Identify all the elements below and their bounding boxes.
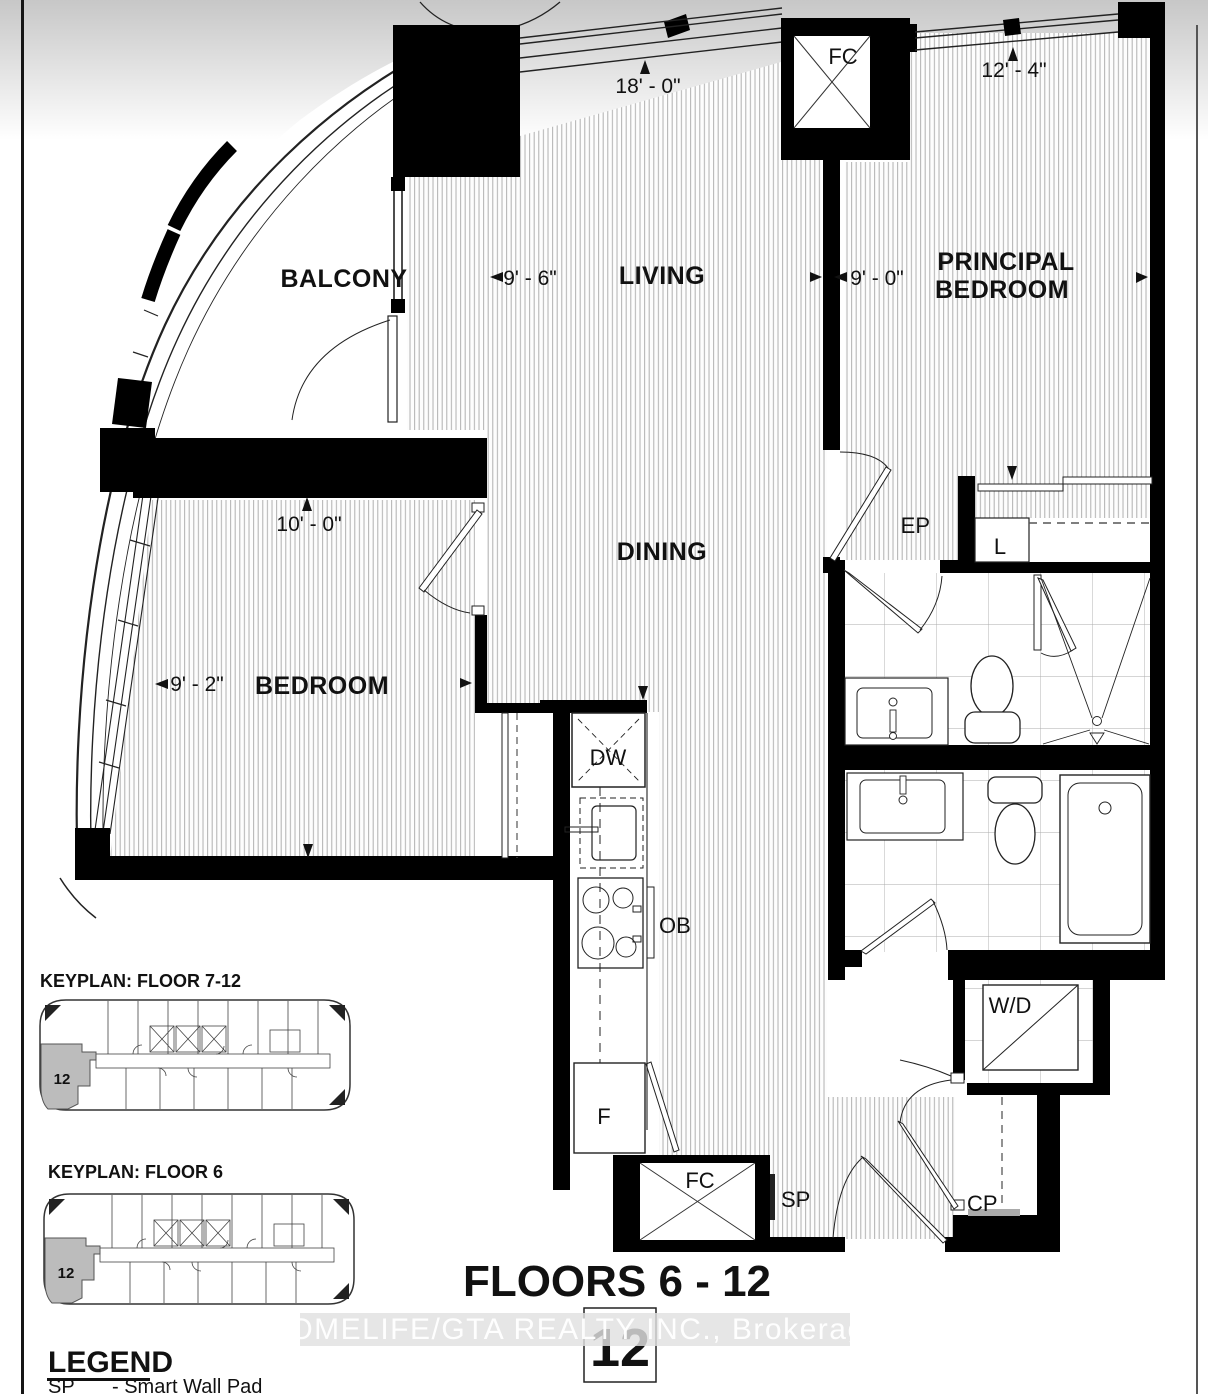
bedroom-door-hinge-bottom xyxy=(472,606,484,615)
dim-living-length: 18' - 0" xyxy=(615,75,680,98)
dim-bedroom-length: 10' - 0" xyxy=(276,513,341,536)
wall-balcony-bedroom xyxy=(133,438,487,498)
living-label: LIVING xyxy=(619,262,705,290)
bedroom-closet-slider xyxy=(502,713,508,858)
wall-entry-se xyxy=(953,1215,1060,1252)
watermark: HOMELIFE/GTA REALTY INC., Brokerage xyxy=(266,1313,884,1346)
ep-corridor-floor xyxy=(845,440,958,560)
wall-ne-corner xyxy=(1118,2,1165,38)
floorplan-page: 12 xyxy=(0,0,1208,1394)
legend-item-description: - Smart Wall Pad xyxy=(112,1376,262,1394)
wall-wd-west xyxy=(953,980,965,1080)
window-cap-top xyxy=(391,177,405,191)
wall-bath2-south-right xyxy=(948,950,1165,980)
bedroom-label: BEDROOM xyxy=(255,672,389,700)
dim-principal-length: 12' - 4" xyxy=(981,59,1046,82)
fridge-label: F xyxy=(597,1104,610,1129)
wall-curve-chunk xyxy=(112,378,152,428)
wall-east xyxy=(1150,33,1165,980)
principal-closet-slider-left xyxy=(978,484,1063,491)
principal-bedroom-floor-top xyxy=(910,33,1150,162)
smart-wall-pad xyxy=(770,1174,775,1220)
fc-top-label: FC xyxy=(828,44,857,69)
bathroom2-toilet-bowl xyxy=(995,804,1035,864)
principal-bedroom-label-line2: BEDROOM xyxy=(935,276,1069,304)
linen-label: L xyxy=(994,534,1006,559)
wall-ep-stub xyxy=(958,476,975,562)
wall-between-baths xyxy=(833,745,1165,770)
floors-title: FLOORS 6 - 12 xyxy=(463,1257,771,1306)
dining-label: DINING xyxy=(617,538,708,566)
wall-kitchen-north xyxy=(540,700,647,713)
dim-living-width: 9' - 6" xyxy=(503,267,556,290)
principal-bedroom-floor xyxy=(845,162,1150,478)
keyplan2-title: KEYPLAN: FLOOR 6 xyxy=(48,1162,223,1182)
wall-wd-south xyxy=(967,1083,1110,1095)
wall-cp-east xyxy=(1037,1095,1060,1215)
fc-bottom-label: FC xyxy=(685,1168,714,1193)
right-page-border xyxy=(1196,25,1198,1394)
watermark-text: HOMELIFE/GTA REALTY INC., Brokerage xyxy=(266,1313,884,1346)
ensuite-toilet-bowl xyxy=(971,656,1013,716)
wall-bath2-south-left xyxy=(833,950,862,967)
keyplan2-drawing xyxy=(44,1194,354,1304)
legend-item-code: SP xyxy=(48,1376,75,1394)
keyplan1-title: KEYPLAN: FLOOR 7-12 xyxy=(40,971,241,991)
shower-partition xyxy=(1034,575,1041,650)
balcony-door-leaf xyxy=(388,316,397,422)
dim-bedroom-width: 9' - 2" xyxy=(170,673,223,696)
wall-top-left-column xyxy=(393,25,520,177)
balcony-label: BALCONY xyxy=(280,265,407,293)
ep-label: EP xyxy=(901,513,930,538)
sp-label: SP xyxy=(781,1187,810,1212)
bathroom2-toilet-tank xyxy=(988,777,1042,803)
principal-bedroom-label-line1: PRINCIPAL xyxy=(937,248,1074,276)
wall-wd-east xyxy=(1093,980,1110,1095)
legend-title: LEGEND xyxy=(48,1346,173,1379)
dim-principal-width: 9' - 0" xyxy=(850,267,903,290)
cp-label: CP xyxy=(967,1191,998,1216)
window-cap-bottom xyxy=(391,299,405,313)
mullion-principal-mid xyxy=(1003,18,1021,36)
cp-door-hinge-top xyxy=(951,1073,964,1083)
principal-closet-slider-right xyxy=(1063,477,1152,484)
dishwasher-label: DW xyxy=(590,745,627,770)
ensuite-toilet-tank xyxy=(965,712,1020,743)
wall-bedroom-south xyxy=(85,856,560,880)
floor-plan-drawing: 12 xyxy=(0,0,1208,1394)
washer-dryer-label: W/D xyxy=(989,993,1032,1018)
wall-kitchen-west xyxy=(553,713,570,1190)
wall-living-principal xyxy=(823,160,840,450)
wall-bedroom-east xyxy=(475,615,487,713)
oven-label: OB xyxy=(659,913,691,938)
bathtub-drain xyxy=(1099,802,1111,814)
left-page-border xyxy=(21,0,24,1394)
keyplan1-drawing xyxy=(40,1000,350,1110)
